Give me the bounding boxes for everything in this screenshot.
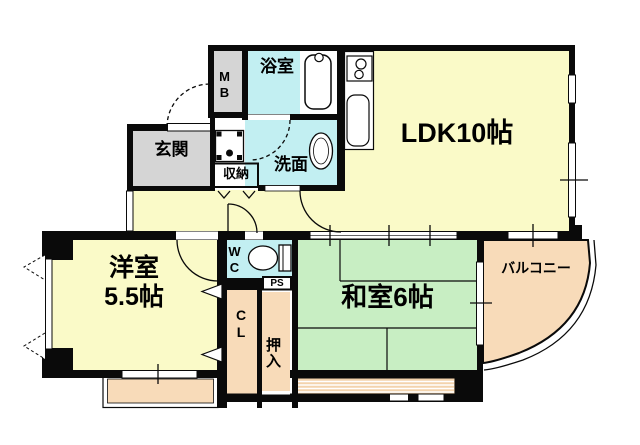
wall	[127, 124, 133, 191]
wall	[42, 231, 73, 260]
toilet-bowl-icon	[249, 246, 278, 270]
wall	[127, 186, 215, 191]
bathtub-tap-icon	[315, 53, 323, 61]
lower-balcony-floor	[108, 379, 214, 403]
bay-window	[46, 259, 53, 349]
wall	[292, 233, 298, 408]
wall	[257, 290, 262, 408]
closet-cl	[227, 290, 257, 394]
entry-door-leaf	[168, 124, 211, 132]
wall	[337, 45, 345, 190]
vent	[390, 395, 408, 401]
entry-door-arc	[167, 84, 210, 127]
vent	[419, 395, 444, 401]
room-genkan	[133, 128, 212, 188]
balcony-floor	[483, 240, 590, 363]
oshiire-bottom-gap	[262, 391, 290, 395]
window	[127, 191, 134, 231]
casement-window-swing	[24, 255, 45, 280]
pipe-space-box	[263, 277, 291, 290]
window	[122, 371, 197, 379]
toilet-tank-icon	[279, 245, 291, 271]
wc-door-opening	[245, 232, 263, 240]
floor-plan: 浴室 MB LDK10帖 玄関 収納 洗面 WC PS CL 押入 洋室5.5帖…	[0, 0, 640, 445]
hallway	[133, 190, 569, 233]
floor-plan-drawing	[0, 0, 640, 445]
wall	[573, 225, 582, 240]
room-youshitsu	[48, 240, 220, 371]
drain-icon	[226, 150, 233, 157]
wall	[217, 240, 227, 408]
wall	[290, 370, 477, 378]
bathtub-icon	[305, 55, 331, 109]
wall	[127, 124, 168, 131]
stove-burner-icon	[355, 70, 363, 78]
window	[569, 75, 576, 103]
wall	[208, 45, 575, 51]
youshitsu-door-opening	[176, 232, 218, 240]
casement-window-swing	[24, 333, 45, 359]
meter-box	[214, 51, 243, 113]
stove-burner-icon	[356, 59, 366, 69]
bath-door-opening	[248, 115, 290, 121]
washroom-door-opening	[265, 186, 300, 192]
wall	[242, 45, 248, 115]
closet-oshiire	[262, 292, 290, 391]
kitchen-sink-icon	[347, 95, 369, 146]
wall	[208, 45, 214, 118]
